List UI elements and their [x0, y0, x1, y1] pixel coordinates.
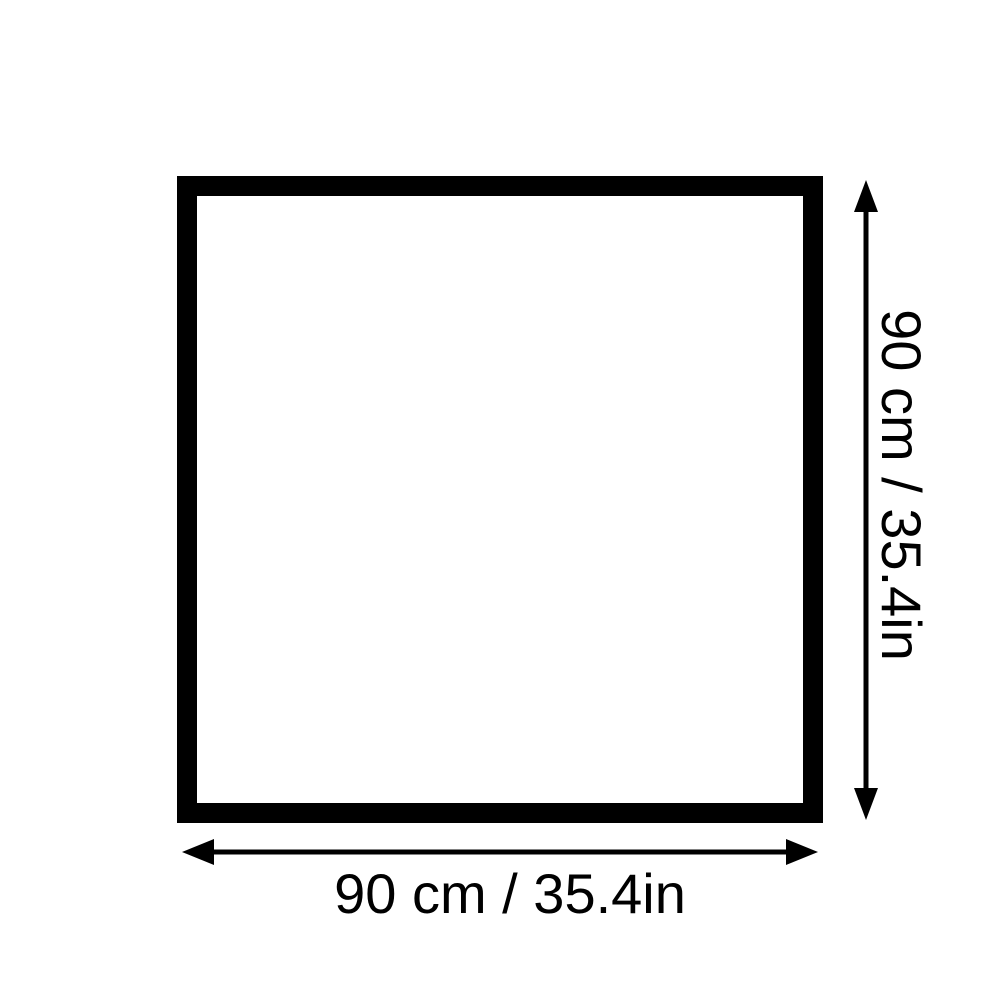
width-dimension-label: 90 cm / 35.4in	[334, 866, 686, 922]
product-outline-square	[177, 176, 823, 823]
arrowhead-down-icon	[854, 788, 878, 820]
arrowhead-up-icon	[854, 180, 878, 212]
dimension-diagram: 90 cm / 35.4in 90 cm / 35.4in	[0, 0, 1000, 1000]
height-dimension-label: 90 cm / 35.4in	[873, 309, 929, 661]
arrowhead-right-icon	[786, 839, 818, 865]
arrowhead-left-icon	[182, 839, 214, 865]
